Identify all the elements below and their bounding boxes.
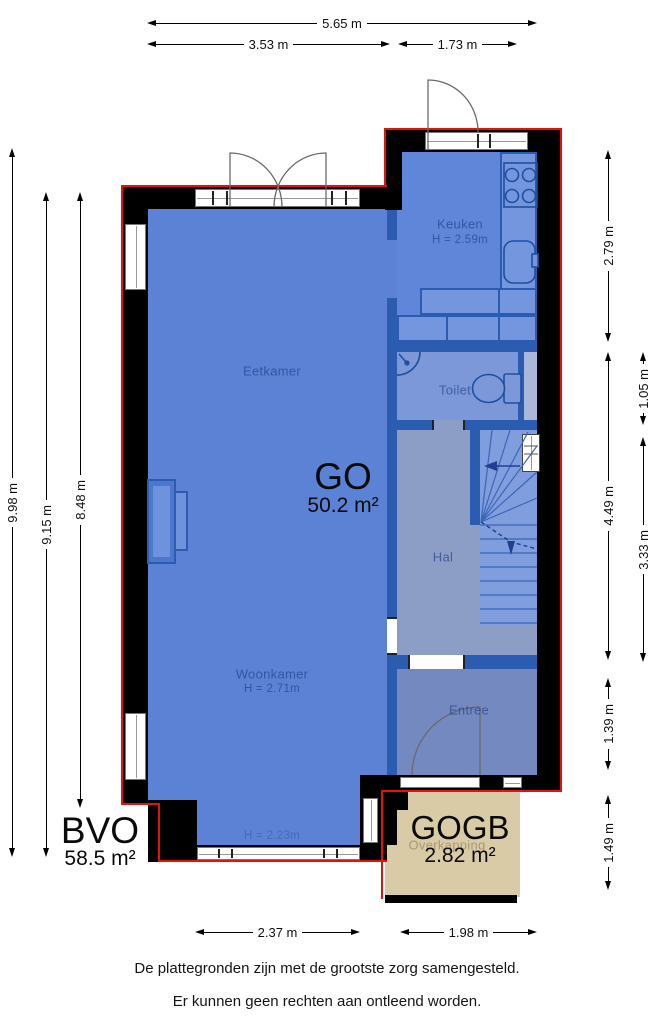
left-window-upper	[125, 224, 146, 290]
wall-toilet-hall	[397, 420, 537, 430]
outline-top-dining	[121, 185, 387, 187]
dim-top-left-section: 3.53 m	[147, 37, 390, 51]
room-label-keuken: Keuken	[437, 217, 483, 232]
dim-right-overkapping: 1.49 m	[601, 795, 615, 890]
french-doors-window-strip	[195, 189, 360, 207]
window-mullion-tick	[345, 191, 347, 205]
room-label-woonkamer: Woonkamer	[236, 667, 309, 682]
door-opening-hall-entree	[408, 655, 465, 669]
room-height-keuken: H = 2.59m	[432, 234, 488, 246]
wall-hall-stairs	[470, 428, 480, 525]
corner-side-window	[363, 798, 378, 843]
kitchen-counter-right	[500, 152, 537, 300]
outline-step-bottom-left-v	[158, 803, 160, 862]
dim-left-inner: 9.15 m	[39, 192, 53, 857]
area-code-bvo: BVO	[61, 810, 139, 852]
outline-step-bottom-left-h	[121, 803, 160, 805]
wall-kitchen-toilet	[397, 342, 537, 352]
area-value-go: 50.2 m²	[307, 494, 378, 518]
window-mullion-tick	[226, 191, 228, 205]
dim-right-kitchen: 2.79 m	[601, 150, 615, 342]
dim-bottom-entrance: 1.98 m	[400, 925, 537, 939]
area-value-gogb: 2.82 m²	[424, 844, 495, 868]
dim-right-toilet: 1.05 m	[636, 352, 650, 425]
room-label-entree: Entree	[449, 703, 489, 718]
opening-dining-kitchen	[387, 240, 397, 298]
counter-divider	[446, 315, 448, 342]
room-height-woonkamer: H = 2.71m	[244, 683, 300, 695]
room-label-hal: Hal	[433, 550, 453, 565]
dim-top-right-section: 1.73 m	[398, 37, 517, 51]
outline-bottom	[158, 860, 387, 862]
door-frame-tick	[432, 420, 434, 430]
window-mullion-tick	[231, 849, 233, 858]
area-code-gogb: GOGB	[410, 809, 509, 847]
door-frame-tick	[408, 655, 410, 669]
dim-right-middle: 4.49 m	[601, 352, 615, 660]
entree-window	[503, 777, 522, 788]
room-label-toilet: Toilet	[439, 383, 471, 398]
room-label-eetkamer: Eetkamer	[243, 364, 301, 379]
floor-shaft	[524, 352, 537, 420]
dim-right-entree: 1.39 m	[601, 678, 615, 770]
disclaimer-line-2: Er kunnen geen rechten aan ontleend word…	[0, 993, 654, 1010]
door-frame-tick	[463, 420, 465, 430]
window-mullion-tick	[477, 134, 479, 148]
dim-bottom-window: 2.37 m	[195, 925, 360, 939]
window-mullion-tick	[331, 191, 333, 205]
rear-window-height-note: H = 2.23m	[244, 830, 300, 842]
outline-step-kitchen	[384, 128, 386, 187]
wall-toilet-shaft	[518, 352, 524, 420]
dim-right-hall: 3.33 m	[636, 437, 650, 662]
wall-overkapping-stub	[383, 790, 408, 810]
door-frame-tick	[387, 617, 397, 619]
floorplan-canvas: Eetkamer Keuken H = 2.59m Toilet Hal Woo…	[0, 0, 654, 1024]
outline-overkapping-left	[381, 790, 383, 899]
wall-kitchen-left-stub	[385, 152, 402, 210]
outline-entree-bottom	[383, 790, 562, 792]
outline-right	[560, 128, 562, 792]
window-mullion-tick	[323, 849, 325, 858]
door-opening-toilet	[432, 420, 465, 430]
area-value-bvo: 58.5 m²	[64, 847, 135, 871]
window-mullion-tick	[336, 849, 338, 858]
dim-top-overall: 5.65 m	[147, 16, 537, 30]
door-opening-hall-living	[387, 617, 397, 655]
floor-hall-under-stairs	[480, 625, 537, 655]
kitchen-counter-row1	[420, 288, 537, 315]
wall-right	[537, 130, 562, 790]
meter-cupboard	[522, 434, 540, 472]
door-frame-tick	[463, 655, 465, 669]
outline-left	[121, 185, 123, 805]
counter-divider	[498, 288, 500, 342]
dim-left-room: 8.48 m	[73, 192, 87, 808]
kitchen-counter-row2	[397, 315, 537, 342]
overkapping-bottom-edge	[385, 895, 517, 903]
floor-entree	[397, 669, 537, 775]
front-door-strip	[400, 777, 480, 788]
dim-left-overall: 9.98 m	[5, 148, 19, 857]
window-mullion-tick	[218, 849, 220, 858]
floor-hall	[397, 430, 480, 655]
outline-top-kitchen	[384, 128, 562, 130]
window-mullion-tick	[212, 191, 214, 205]
area-code-go: GO	[314, 456, 372, 498]
left-window-lower	[125, 713, 146, 780]
disclaimer-line-1: De plattegronden zijn met de grootste zo…	[0, 960, 654, 977]
window-mullion-tick	[489, 134, 491, 148]
